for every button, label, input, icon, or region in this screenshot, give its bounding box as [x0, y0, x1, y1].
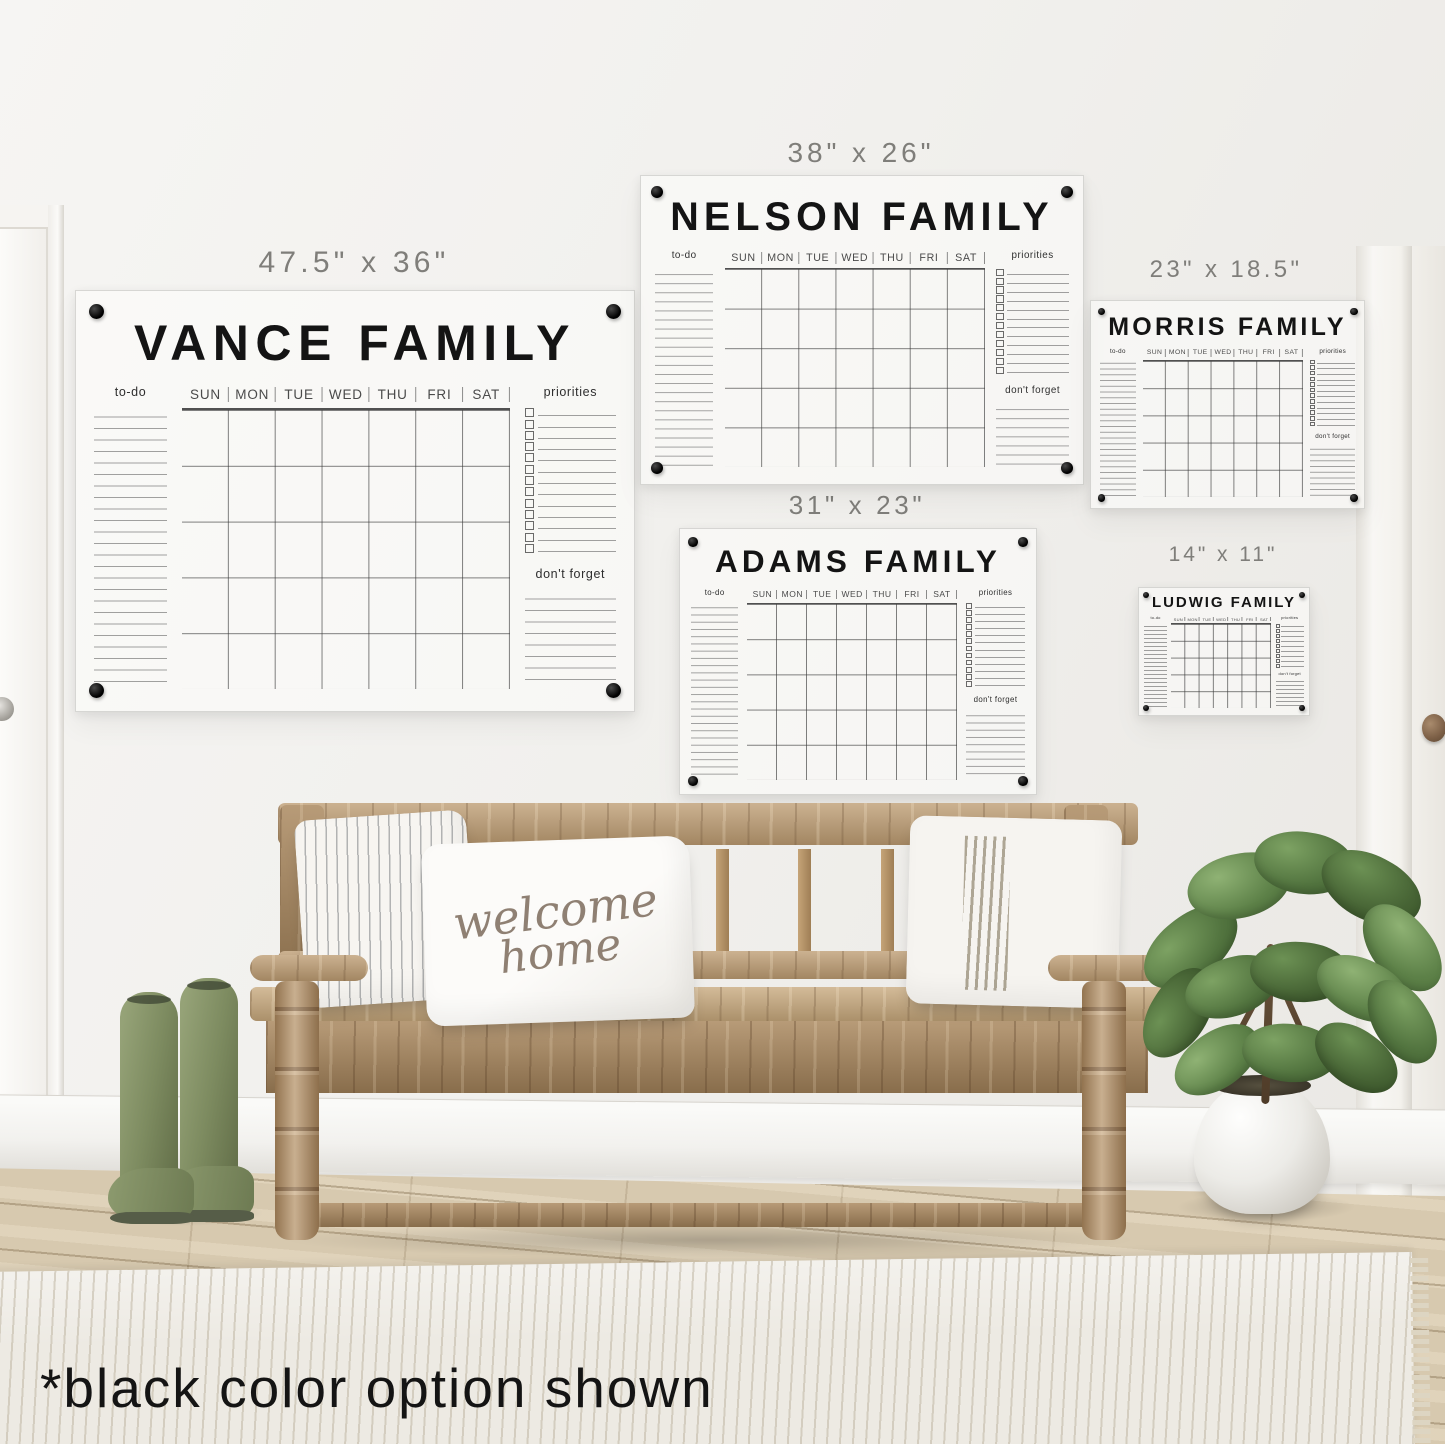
checkbox-icon	[1310, 422, 1315, 427]
checkbox-icon	[1276, 664, 1280, 668]
size-label-morris: 23" x 18.5"	[1150, 256, 1303, 284]
weekday: FRI	[1257, 349, 1280, 356]
priorities-label: priorities	[996, 247, 1068, 266]
checkbox-line	[1007, 345, 1069, 346]
checkbox-line	[1317, 368, 1355, 369]
pillow-welcome-home: welcome home	[421, 835, 695, 1026]
calendar-grid	[1171, 624, 1271, 708]
weekday: SUN	[725, 252, 762, 264]
checkbox-line	[975, 621, 1025, 622]
product-photo-scene: 47.5" x 36" 38" x 26" 23" x 18.5" 31" x …	[0, 0, 1445, 1444]
checkbox-line	[538, 540, 616, 541]
weekday: FRI	[910, 252, 947, 264]
checkbox-line	[975, 635, 1025, 636]
checkbox-line	[1317, 402, 1355, 403]
priorities-checklist	[1310, 359, 1355, 427]
calendar-board-adams: ADAMS FAMILY to-do SUNMONTUEWEDTHUFRISAT…	[679, 528, 1037, 795]
checkbox-line	[538, 506, 616, 507]
weekday-header: SUNMONTUEWEDTHUFRISAT	[747, 586, 956, 604]
priorities-label: priorities	[1310, 346, 1355, 358]
checkbox-line	[975, 685, 1025, 686]
checkbox-icon	[966, 667, 972, 673]
bench-apron	[266, 1021, 1148, 1093]
bench-slat	[798, 849, 811, 951]
bench-slat	[716, 849, 729, 951]
checkbox-line	[538, 472, 616, 473]
calendar-board-ludwig: LUDWIG FAMILY to-do SUNMONTUEWEDTHUFRISA…	[1138, 587, 1310, 716]
checkbox-icon	[966, 653, 972, 659]
checkbox-icon	[525, 420, 534, 429]
checkbox-icon	[966, 617, 972, 623]
todo-section: to-do	[1100, 346, 1136, 497]
checkbox-icon	[1310, 405, 1315, 410]
mount-dot-icon	[1350, 494, 1358, 502]
weekday: WED	[1212, 349, 1235, 356]
checkbox-line	[1007, 310, 1069, 311]
checkbox-icon	[525, 453, 534, 462]
calendar-board-morris: MORRIS FAMILY to-do SUNMONTUEWEDTHUFRISA…	[1090, 300, 1365, 509]
todo-lines	[94, 406, 167, 690]
checkbox-line	[1281, 636, 1304, 637]
checkbox-line	[1317, 425, 1355, 426]
dont-forget-label: don't forget	[525, 554, 616, 588]
checkbox-icon	[966, 638, 972, 644]
weekday: MON	[229, 387, 276, 402]
weekday: TUE	[807, 589, 837, 599]
checkbox-icon	[966, 631, 972, 637]
checkbox-icon	[525, 510, 534, 519]
checkbox-icon	[525, 533, 534, 542]
checkbox-line	[1281, 661, 1304, 662]
checkbox-icon	[966, 603, 972, 609]
mount-dot-icon	[1098, 494, 1106, 502]
checkbox-icon	[1310, 371, 1315, 376]
checkbox-icon	[1310, 399, 1315, 404]
dont-forget-label: don't forget	[1310, 427, 1355, 444]
checkbox-line	[1007, 354, 1069, 355]
checkbox-line	[538, 438, 616, 439]
calendar-section: SUNMONTUEWEDTHUFRISAT	[1143, 346, 1303, 497]
checkbox-icon	[1310, 360, 1315, 365]
boot-sole	[110, 1212, 194, 1224]
size-label-nelson: 38" x 26"	[787, 137, 934, 169]
checkbox-icon	[525, 465, 534, 474]
checkbox-icon	[1310, 388, 1315, 393]
checkbox-icon	[996, 349, 1003, 356]
boot-left	[108, 992, 196, 1224]
left-door-lintel	[0, 205, 48, 229]
mount-dot-icon	[1143, 592, 1149, 598]
checkbox-icon	[966, 646, 972, 652]
mount-dot-icon	[606, 683, 621, 698]
checkbox-line	[1317, 380, 1355, 381]
mount-dot-icon	[1018, 776, 1027, 785]
todo-section: to-do	[94, 381, 167, 689]
checkbox-icon	[1310, 365, 1315, 370]
todo-lines	[1100, 358, 1136, 497]
checkbox-line	[975, 657, 1025, 658]
mount-dot-icon	[1350, 308, 1358, 316]
checkbox-line	[1281, 641, 1304, 642]
board-body: to-do SUNMONTUEWEDTHUFRISAT priorities d…	[641, 239, 1083, 484]
caption-black-color-option: *black color option shown	[40, 1356, 714, 1420]
checkbox-line	[1007, 336, 1069, 337]
mount-dot-icon	[1061, 462, 1073, 474]
board-body: to-do SUNMONTUEWEDTHUFRISAT priorities d…	[76, 371, 634, 711]
board-family-title: LUDWIG FAMILY	[1139, 588, 1309, 612]
mount-dot-icon	[651, 462, 663, 474]
todo-lines	[1144, 623, 1166, 709]
checkbox-icon	[1310, 416, 1315, 421]
checkbox-line	[975, 664, 1025, 665]
checkbox-line	[975, 650, 1025, 651]
mount-dot-icon	[1061, 186, 1073, 198]
checkbox-icon	[996, 313, 1003, 320]
board-body: to-do SUNMONTUEWEDTHUFRISAT priorities d…	[1091, 341, 1364, 508]
dont-forget-lines	[966, 709, 1024, 780]
checkbox-icon	[996, 304, 1003, 311]
dont-forget-label: don't forget	[996, 375, 1068, 401]
weekday-header: SUNMONTUEWEDTHUFRISAT	[1171, 615, 1271, 624]
checkbox-line	[1281, 631, 1304, 632]
bench-stretcher	[298, 1203, 1116, 1227]
weekday: FRI	[416, 387, 463, 402]
checkbox-line	[538, 449, 616, 450]
checkbox-line	[1007, 283, 1069, 284]
weekday: FRI	[1243, 617, 1257, 622]
dont-forget-lines	[996, 401, 1068, 466]
checkbox-line	[1007, 274, 1069, 275]
checkbox-line	[538, 517, 616, 518]
checkbox-line	[538, 427, 616, 428]
weekday: WED	[1214, 617, 1228, 622]
priorities-section: priorities don't forget	[966, 586, 1024, 780]
todo-lines	[691, 601, 738, 780]
weekday: SAT	[948, 252, 985, 264]
checkbox-line	[1007, 301, 1069, 302]
checkbox-line	[975, 607, 1025, 608]
weekday: FRI	[897, 589, 927, 599]
checkbox-icon	[996, 331, 1003, 338]
todo-lines	[655, 266, 713, 466]
weekday: MON	[1185, 617, 1199, 622]
mount-dot-icon	[606, 304, 621, 319]
checkbox-icon	[966, 660, 972, 666]
todo-label: to-do	[1100, 346, 1136, 358]
checkbox-icon	[1310, 377, 1315, 382]
weekday: TUE	[276, 387, 323, 402]
todo-label: to-do	[94, 381, 167, 406]
calendar-section: SUNMONTUEWEDTHUFRISAT	[1171, 615, 1271, 708]
dont-forget-lines	[525, 588, 616, 689]
bench-slat	[881, 849, 894, 951]
weekday: THU	[867, 589, 897, 599]
weekday: MON	[777, 589, 807, 599]
mount-dot-icon	[1098, 308, 1106, 316]
todo-label: to-do	[691, 586, 738, 601]
board-body: to-do SUNMONTUEWEDTHUFRISAT priorities d…	[680, 579, 1036, 794]
checkbox-line	[1281, 651, 1304, 652]
todo-label: to-do	[655, 247, 713, 266]
weekday: SAT	[463, 387, 510, 402]
checkbox-icon	[966, 681, 972, 687]
right-door-knob	[1422, 714, 1445, 742]
weekday: MON	[1166, 349, 1189, 356]
right-door-panel	[1412, 246, 1445, 1236]
checkbox-icon	[525, 408, 534, 417]
todo-section: to-do	[691, 586, 738, 780]
pillow-script-text: welcome home	[451, 877, 665, 984]
checkbox-line	[1007, 372, 1069, 373]
potted-plant	[1142, 826, 1412, 1241]
checkbox-icon	[996, 340, 1003, 347]
weekday: THU	[369, 387, 416, 402]
calendar-board-vance: VANCE FAMILY to-do SUNMONTUEWEDTHUFRISAT…	[75, 290, 635, 712]
mount-dot-icon	[89, 683, 104, 698]
checkbox-line	[538, 460, 616, 461]
checkbox-line	[1317, 396, 1355, 397]
calendar-section: SUNMONTUEWEDTHUFRISAT	[725, 247, 985, 467]
weekday: THU	[1234, 349, 1257, 356]
weekday: SAT	[1257, 617, 1271, 622]
dont-forget-label: don't forget	[966, 688, 1024, 709]
checkbox-line	[538, 483, 616, 484]
weekday: SUN	[1171, 617, 1185, 622]
checkbox-line	[975, 678, 1025, 679]
left-door	[0, 205, 64, 1193]
weekday: MON	[762, 252, 799, 264]
weekday: SAT	[927, 589, 957, 599]
checkbox-line	[538, 415, 616, 416]
calendar-grid	[182, 410, 510, 689]
priorities-section: priorities don't forget	[1310, 346, 1355, 497]
weekday: SUN	[747, 589, 777, 599]
checkbox-line	[1317, 374, 1355, 375]
checkbox-icon	[996, 278, 1003, 285]
weekday-header: SUNMONTUEWEDTHUFRISAT	[725, 247, 985, 269]
checkbox-line	[1317, 408, 1355, 409]
priorities-label: priorities	[1276, 615, 1304, 623]
size-label-ludwig: 14" x 11"	[1169, 543, 1278, 567]
board-family-title: MORRIS FAMILY	[1091, 301, 1364, 341]
priorities-section: priorities don't forget	[996, 247, 1068, 467]
checkbox-icon	[525, 544, 534, 553]
checkbox-icon	[525, 521, 534, 530]
weekday-header: SUNMONTUEWEDTHUFRISAT	[182, 381, 510, 410]
rain-boots	[108, 978, 263, 1226]
priorities-checklist	[996, 268, 1068, 375]
checkbox-icon	[525, 487, 534, 496]
dont-forget-label: don't forget	[1276, 668, 1304, 678]
checkbox-icon	[525, 499, 534, 508]
weekday: TUE	[1189, 349, 1212, 356]
checkbox-line	[1007, 292, 1069, 293]
checkbox-icon	[996, 322, 1003, 329]
board-family-title: NELSON FAMILY	[641, 176, 1083, 239]
calendar-grid	[1143, 361, 1303, 498]
checkbox-icon	[996, 295, 1003, 302]
checkbox-icon	[525, 442, 534, 451]
checkbox-icon	[966, 624, 972, 630]
checkbox-line	[538, 494, 616, 495]
checkbox-icon	[1276, 634, 1280, 638]
checkbox-line	[1281, 646, 1304, 647]
checkbox-icon	[1276, 644, 1280, 648]
checkbox-icon	[1276, 629, 1280, 633]
checkbox-icon	[1276, 624, 1280, 628]
checkbox-line	[975, 628, 1025, 629]
weekday: WED	[836, 252, 873, 264]
checkbox-icon	[525, 476, 534, 485]
weekday: SUN	[1143, 349, 1166, 356]
calendar-board-nelson: NELSON FAMILY to-do SUNMONTUEWEDTHUFRISA…	[640, 175, 1084, 485]
checkbox-icon	[996, 358, 1003, 365]
checkbox-icon	[966, 674, 972, 680]
priorities-section: priorities don't forget	[1276, 615, 1304, 708]
board-body: to-do SUNMONTUEWEDTHUFRISAT priorities d…	[1139, 612, 1309, 715]
weekday: TUE	[799, 252, 836, 264]
calendar-grid	[747, 604, 956, 780]
checkbox-icon	[525, 431, 534, 440]
checkbox-icon	[1310, 410, 1315, 415]
calendar-grid	[725, 269, 985, 466]
checkbox-line	[538, 528, 616, 529]
mount-dot-icon	[688, 537, 697, 546]
checkbox-icon	[1276, 659, 1280, 663]
size-label-vance: 47.5" x 36"	[259, 246, 450, 280]
left-door-frame	[48, 205, 64, 1193]
checkbox-line	[975, 614, 1025, 615]
checkbox-icon	[1310, 393, 1315, 398]
todo-section: to-do	[1144, 615, 1166, 708]
calendar-section: SUNMONTUEWEDTHUFRISAT	[182, 381, 510, 689]
priorities-checklist	[525, 408, 616, 555]
checkbox-line	[975, 642, 1025, 643]
dont-forget-lines	[1310, 444, 1355, 497]
checkbox-line	[538, 551, 616, 552]
checkbox-line	[1007, 319, 1069, 320]
checkbox-icon	[996, 286, 1003, 293]
weekday: SAT	[1280, 349, 1303, 356]
checkbox-line	[1317, 419, 1355, 420]
checkbox-icon	[1310, 382, 1315, 387]
priorities-label: priorities	[966, 586, 1024, 601]
weekday: WED	[837, 589, 867, 599]
checkbox-line	[1281, 626, 1304, 627]
checkbox-icon	[1276, 639, 1280, 643]
board-family-title: ADAMS FAMILY	[680, 529, 1036, 579]
weekday: THU	[1228, 617, 1242, 622]
mount-dot-icon	[1143, 705, 1149, 711]
priorities-checklist	[1276, 623, 1304, 668]
weekday: SUN	[182, 387, 229, 402]
priorities-label: priorities	[525, 381, 616, 406]
checkbox-line	[1007, 327, 1069, 328]
checkbox-icon	[1276, 654, 1280, 658]
mount-dot-icon	[688, 776, 697, 785]
checkbox-icon	[996, 367, 1003, 374]
mount-dot-icon	[1299, 592, 1305, 598]
priorities-section: priorities don't forget	[525, 381, 616, 689]
mount-dot-icon	[1018, 537, 1027, 546]
pillow-striped-right	[906, 815, 1123, 1008]
checkbox-line	[1007, 363, 1069, 364]
mount-dot-icon	[89, 304, 104, 319]
dont-forget-lines	[1276, 678, 1304, 708]
checkbox-line	[1317, 385, 1355, 386]
checkbox-line	[975, 671, 1025, 672]
checkbox-icon	[1276, 649, 1280, 653]
weekday-header: SUNMONTUEWEDTHUFRISAT	[1143, 346, 1303, 361]
weekday: TUE	[1200, 617, 1214, 622]
size-label-adams: 31" x 23"	[789, 490, 926, 521]
priorities-checklist	[966, 602, 1024, 687]
board-family-title: VANCE FAMILY	[76, 291, 634, 371]
todo-label: to-do	[1144, 615, 1166, 623]
checkbox-icon	[966, 610, 972, 616]
checkbox-line	[1317, 391, 1355, 392]
weekday: WED	[322, 387, 369, 402]
checkbox-line	[1317, 363, 1355, 364]
checkbox-line	[1281, 656, 1304, 657]
checkbox-icon	[996, 269, 1003, 276]
todo-section: to-do	[655, 247, 713, 467]
weekday: THU	[873, 252, 910, 264]
checkbox-line	[1317, 413, 1355, 414]
calendar-section: SUNMONTUEWEDTHUFRISAT	[747, 586, 956, 780]
